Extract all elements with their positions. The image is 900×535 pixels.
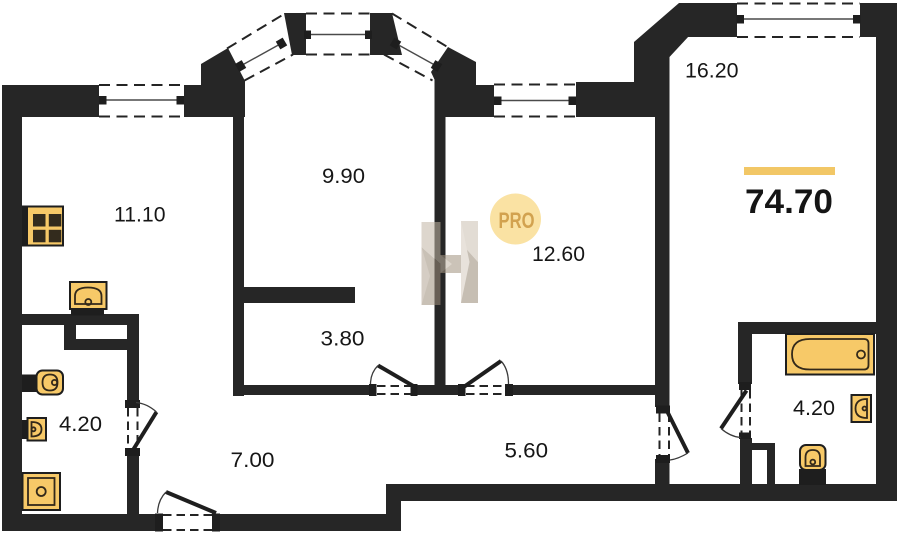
svg-text:9.90: 9.90 [322, 165, 365, 188]
svg-text:74.70: 74.70 [745, 183, 833, 221]
svg-text:4.20: 4.20 [59, 413, 102, 436]
svg-text:11.10: 11.10 [114, 204, 166, 227]
svg-text:4.20: 4.20 [793, 397, 835, 420]
svg-text:3.80: 3.80 [321, 328, 365, 351]
svg-text:5.60: 5.60 [505, 440, 549, 463]
svg-text:16.20: 16.20 [685, 60, 739, 83]
svg-text:12.60: 12.60 [532, 243, 585, 266]
svg-text:PRO: PRO [499, 208, 535, 233]
svg-text:7.00: 7.00 [231, 449, 275, 472]
